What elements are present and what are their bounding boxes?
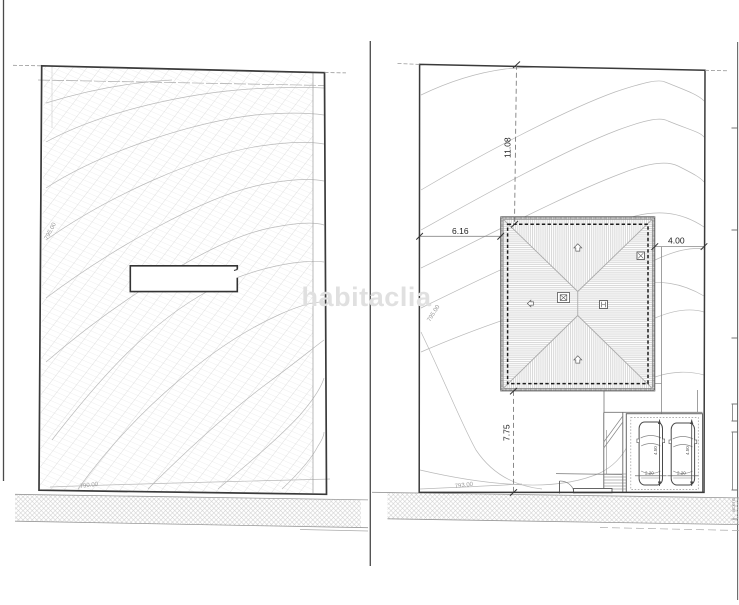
svg-text:habitaclia: habitaclia	[301, 282, 431, 312]
svg-text:7.75: 7.75	[502, 424, 512, 441]
svg-text:11.08: 11.08	[503, 137, 513, 158]
svg-text:2.20: 2.20	[645, 470, 654, 475]
svg-text:6.16: 6.16	[452, 226, 469, 236]
svg-text:2.20: 2.20	[677, 470, 686, 475]
svg-text:4.50: 4.50	[685, 446, 690, 455]
svg-text:4.50: 4.50	[653, 446, 658, 455]
svg-text:4.00: 4.00	[668, 236, 685, 246]
